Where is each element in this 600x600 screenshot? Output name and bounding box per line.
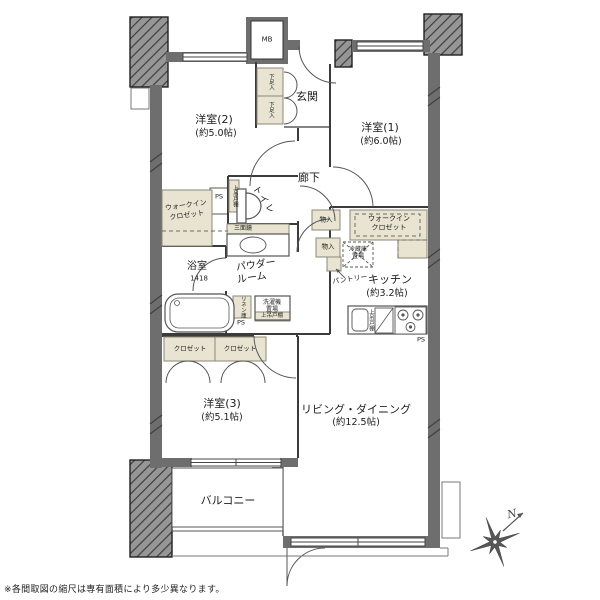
room-label-living: リビング・ダイニング	[301, 404, 411, 416]
room-label-bath: 浴室	[187, 262, 207, 273]
room-label-yoshitsu2: 洋室(2)	[195, 114, 233, 126]
room-size-yoshitsu3: (約5.1帖)	[201, 413, 243, 423]
shelf-label-toilet: 上吊戸棚	[231, 185, 237, 207]
mirror-label: 三面鏡	[234, 226, 252, 232]
wic-right-label-1: ウォークイン	[368, 215, 410, 222]
bath-size-label: 1418	[190, 275, 208, 282]
room-label-genkan: 玄関	[296, 91, 318, 103]
room-size-kitchen: (約3.2帖)	[366, 289, 408, 299]
room-size-living: (約12.5帖)	[332, 418, 380, 428]
scale-footnote: ※各間取図の縮尺は専有面積により多少異なります。	[4, 582, 225, 595]
room-label-kitchen: キッチン	[368, 274, 412, 286]
shelf-label-washer: 上吊戸棚	[261, 314, 283, 320]
room-label-yoshitsu3: 洋室(3)	[203, 398, 241, 410]
floorplan-page: MB 玄関 下足入 下足入 洋室(2) (約5.0帖) 洋室(1) (約6.0帖…	[0, 0, 600, 600]
closet-label-1: クロゼット	[174, 346, 207, 353]
linen-label: リネン庫	[239, 296, 245, 318]
monoire-label-1: 物入	[320, 217, 333, 224]
shoe-cabinet-label-1: 下足入	[267, 74, 273, 91]
room-label-rouka: 廊下	[298, 172, 320, 184]
room-size-yoshitsu2: (約5.0帖)	[195, 129, 237, 139]
room-size-yoshitsu1: (約6.0帖)	[360, 137, 402, 147]
ps-label-2: PS	[237, 320, 245, 327]
ps-label-3: PS	[417, 337, 425, 344]
monoire-label-2: 物入	[322, 244, 335, 251]
shoe-cabinet-label-2: 下足入	[267, 102, 273, 119]
north-label: N	[506, 507, 518, 522]
wic-right-label-2: クロゼット	[372, 224, 407, 231]
room-label-yoshitsu1: 洋室(1)	[361, 122, 399, 134]
ps-label-1: PS	[215, 194, 223, 201]
meter-box-label: MB	[262, 36, 273, 43]
fridge-label-2: 置場	[352, 254, 364, 260]
room-label-balcony: バルコニー	[201, 495, 256, 507]
closet-label-2: クロゼット	[224, 346, 257, 353]
shelf-label-kitchen: 上吊戸棚	[367, 309, 373, 331]
